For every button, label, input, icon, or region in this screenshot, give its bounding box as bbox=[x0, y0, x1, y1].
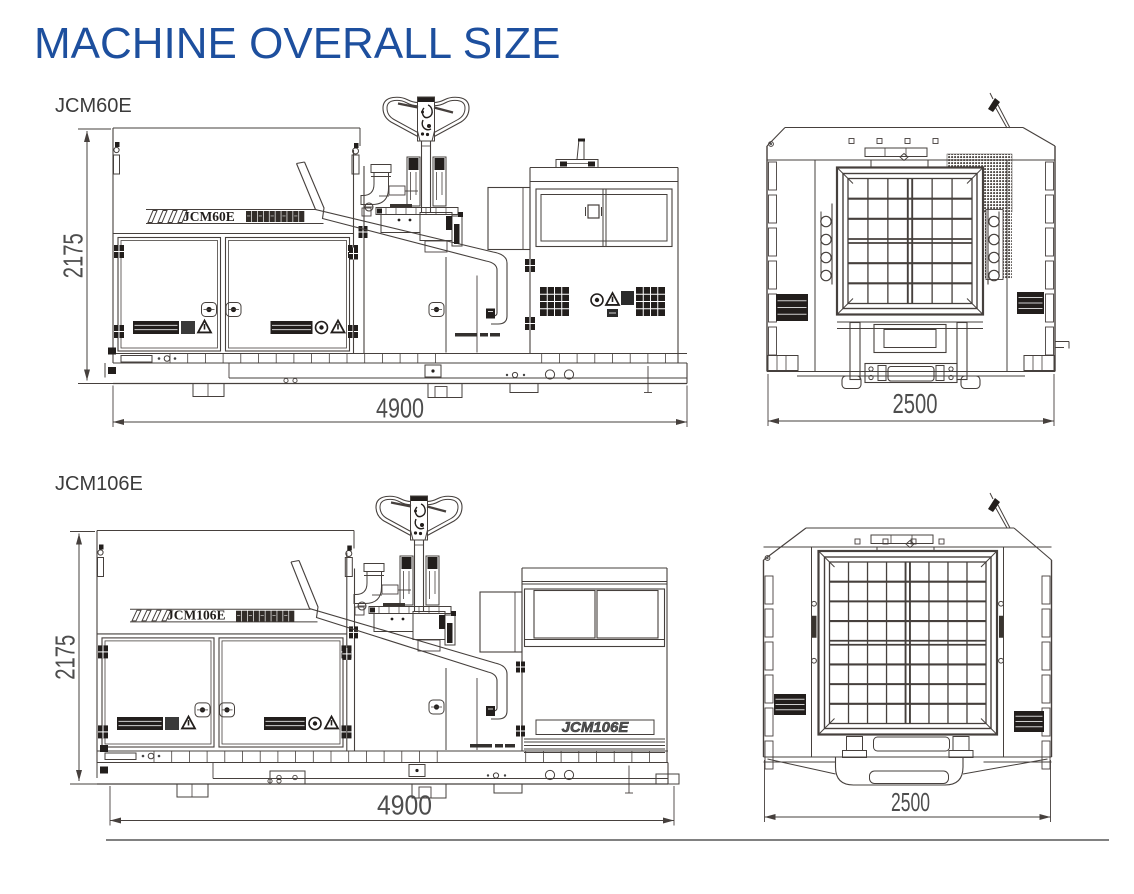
svg-text:JCM106E: JCM106E bbox=[167, 607, 226, 622]
svg-text:JCM60E: JCM60E bbox=[55, 95, 132, 117]
svg-text:JCM106E: JCM106E bbox=[55, 473, 143, 495]
svg-text:MACHINE OVERALL SIZE: MACHINE OVERALL SIZE bbox=[34, 19, 561, 68]
svg-text:4900: 4900 bbox=[377, 790, 432, 821]
svg-text:2500: 2500 bbox=[893, 388, 938, 419]
svg-text:2175: 2175 bbox=[58, 233, 89, 278]
svg-text:JCM60E: JCM60E bbox=[183, 209, 235, 224]
svg-text:JCM106E: JCM106E bbox=[562, 719, 630, 736]
svg-text:2500: 2500 bbox=[891, 787, 930, 817]
svg-text:2175: 2175 bbox=[50, 635, 81, 680]
svg-text:4900: 4900 bbox=[376, 393, 424, 424]
